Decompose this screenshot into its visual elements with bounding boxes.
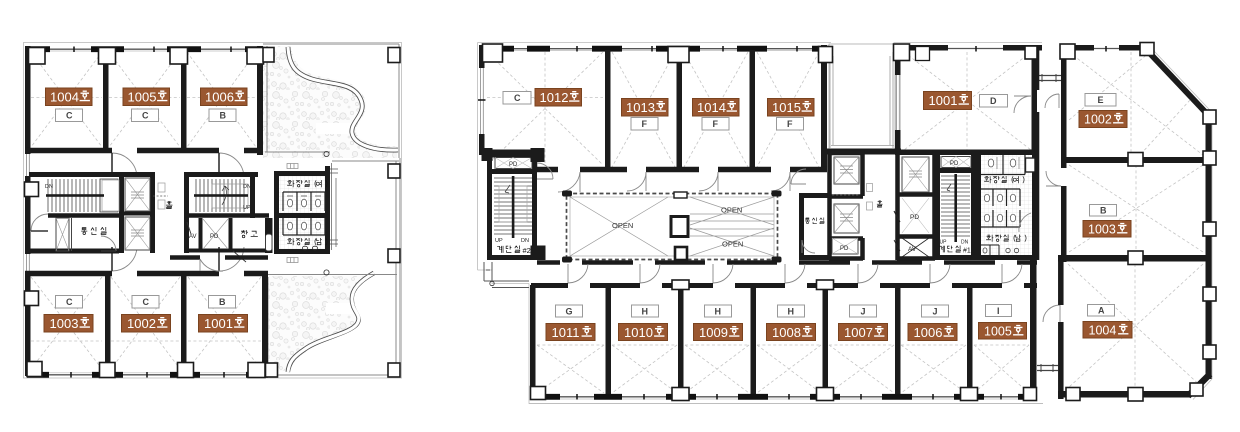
svg-text:1004: 1004 (50, 90, 79, 105)
svg-text:1004: 1004 (1089, 324, 1117, 338)
svg-text:B: B (219, 297, 226, 307)
svg-text:H: H (715, 307, 722, 317)
svg-text:C: C (66, 111, 73, 121)
svg-text:J: J (861, 307, 866, 317)
svg-text:1002: 1002 (1084, 113, 1112, 127)
svg-text:F: F (713, 119, 719, 129)
svg-text:F: F (787, 119, 793, 129)
svg-text:AV: AV (189, 234, 197, 240)
svg-text:UP: UP (243, 205, 251, 211)
svg-text:B: B (220, 111, 227, 121)
svg-text:C: C (66, 297, 73, 307)
svg-text:PD: PD (509, 162, 518, 168)
svg-text:#1: #1 (963, 247, 971, 254)
svg-text:DN: DN (521, 238, 529, 244)
svg-text:1011: 1011 (552, 325, 580, 340)
svg-text:1005: 1005 (128, 90, 157, 105)
svg-text:E: E (1098, 95, 1104, 105)
svg-text:DN: DN (45, 184, 53, 190)
svg-text:1003: 1003 (50, 316, 79, 331)
svg-text:B: B (1100, 206, 1107, 216)
svg-text:PD: PD (950, 161, 959, 167)
svg-text:OPEN: OPEN (721, 206, 742, 215)
svg-text:1006: 1006 (914, 325, 943, 340)
svg-text:OPEN: OPEN (612, 221, 633, 230)
svg-text:H: H (788, 307, 795, 317)
svg-text:1003: 1003 (1088, 223, 1116, 237)
svg-text:1008: 1008 (772, 325, 801, 340)
svg-text:A: A (1098, 306, 1105, 316)
svg-text:1002: 1002 (127, 316, 156, 331)
svg-text:D: D (990, 96, 997, 106)
svg-text:J: J (933, 307, 938, 317)
svg-text:PD: PD (840, 246, 849, 252)
svg-text:#2: #2 (523, 246, 531, 255)
svg-text:G: G (566, 307, 573, 317)
svg-text:1009: 1009 (699, 325, 728, 340)
svg-text:1010: 1010 (624, 325, 653, 340)
svg-text:1015: 1015 (772, 100, 801, 115)
svg-text:1006: 1006 (205, 90, 234, 105)
svg-text:C: C (143, 297, 150, 307)
svg-text:I: I (997, 306, 1000, 316)
svg-text:1005: 1005 (984, 325, 1012, 339)
svg-text:PD: PD (210, 234, 219, 240)
svg-text:1001: 1001 (204, 316, 233, 331)
svg-text:C: C (142, 111, 149, 121)
svg-text:1014: 1014 (697, 100, 726, 115)
svg-text:1012: 1012 (540, 90, 569, 105)
svg-text:UP: UP (940, 240, 948, 246)
svg-text:1001: 1001 (929, 93, 958, 108)
svg-text:C: C (514, 93, 521, 103)
svg-text:H: H (642, 307, 649, 317)
svg-text:1013: 1013 (626, 100, 655, 115)
svg-text:1007: 1007 (844, 325, 873, 340)
svg-text:F: F (642, 119, 648, 129)
svg-text:DN: DN (243, 184, 251, 190)
svg-text:UP: UP (495, 238, 503, 244)
svg-text:DN: DN (961, 240, 969, 246)
svg-text:PD: PD (910, 214, 919, 221)
svg-text:OPEN: OPEN (722, 240, 743, 249)
